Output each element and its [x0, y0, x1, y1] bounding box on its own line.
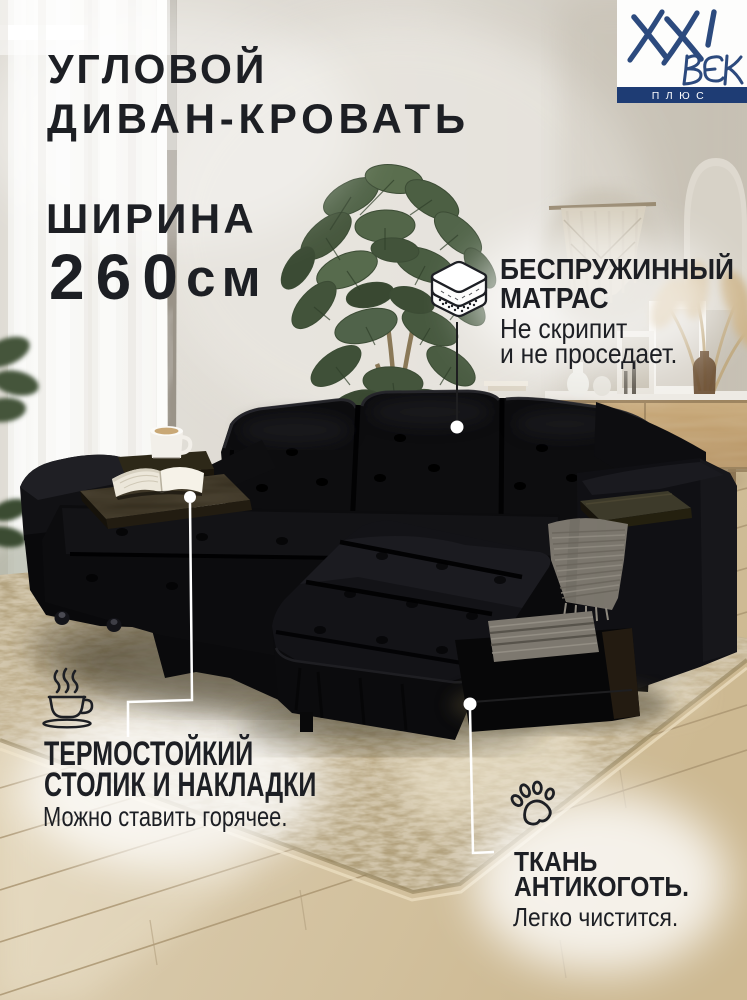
svg-text:ПЛЮС: ПЛЮС — [652, 90, 711, 102]
